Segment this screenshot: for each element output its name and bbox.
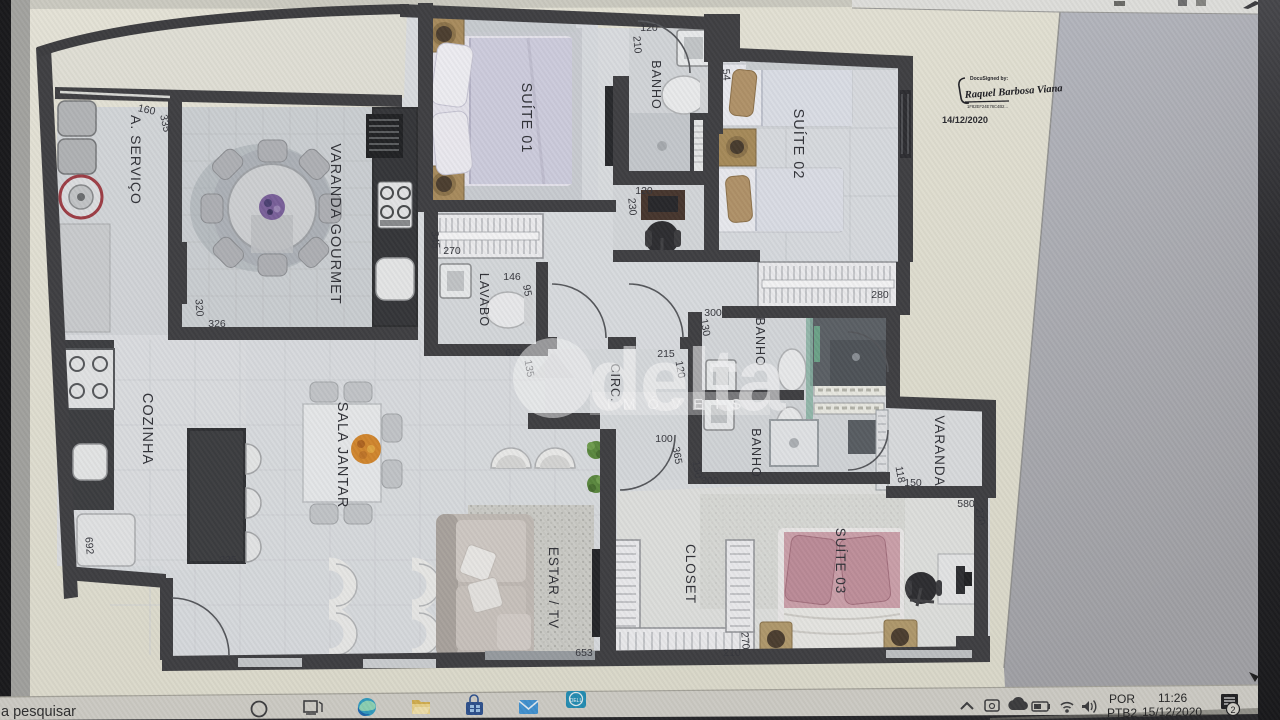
svg-text:692: 692: [82, 536, 95, 555]
svg-text:SUÍTE 02: SUÍTE 02: [790, 109, 807, 180]
svg-text:CLOSET: CLOSET: [683, 544, 698, 604]
svg-text:VARANDA: VARANDA: [932, 415, 947, 486]
svg-text:326: 326: [208, 318, 226, 330]
svg-text:PTB2: PTB2: [1107, 706, 1137, 720]
svg-text:11:26: 11:26: [1158, 691, 1187, 705]
svg-text:IMÓVEIS: IMÓVEIS: [607, 396, 754, 413]
svg-text:120: 120: [635, 185, 653, 197]
svg-text:14/12/2020: 14/12/2020: [942, 115, 988, 125]
svg-text:580: 580: [957, 498, 975, 510]
svg-text:ESTAR / TV: ESTAR / TV: [546, 547, 561, 629]
svg-text:SUÍTE 03: SUÍTE 03: [833, 528, 848, 595]
svg-text:15/12/2020: 15/12/2020: [1142, 705, 1202, 719]
svg-text:SALA JANTAR: SALA JANTAR: [334, 402, 350, 509]
svg-text:VARANDA GOURMET: VARANDA GOURMET: [327, 143, 343, 304]
svg-text:210: 210: [723, 647, 741, 659]
svg-text:54: 54: [720, 68, 733, 81]
svg-text:345: 345: [428, 231, 441, 249]
svg-text:100: 100: [655, 433, 673, 445]
svg-text:LAVABO: LAVABO: [477, 273, 491, 327]
svg-text:1F82EF24E78C4B2...: 1F82EF24E78C4B2...: [967, 104, 1008, 109]
svg-text:A. SERVIÇO: A. SERVIÇO: [128, 115, 144, 205]
svg-text:270: 270: [443, 245, 461, 257]
svg-text:BANHO: BANHO: [649, 60, 663, 109]
svg-text:120: 120: [640, 22, 658, 34]
svg-text:300: 300: [701, 475, 719, 487]
svg-text:DocuSigned by:: DocuSigned by:: [970, 76, 1008, 82]
svg-text:210: 210: [630, 35, 643, 54]
svg-text:300: 300: [704, 307, 722, 319]
svg-text:320: 320: [192, 299, 205, 317]
svg-text:2: 2: [1230, 705, 1235, 715]
svg-text:235: 235: [219, 554, 237, 566]
svg-text:150: 150: [904, 477, 922, 489]
svg-text:COZINHA: COZINHA: [139, 393, 155, 465]
svg-text:95: 95: [520, 284, 534, 298]
svg-text:POR: POR: [1109, 692, 1135, 706]
svg-text:a pesquisar: a pesquisar: [1, 704, 76, 720]
svg-text:DELL: DELL: [570, 698, 583, 704]
svg-text:653: 653: [575, 647, 593, 659]
svg-text:146: 146: [503, 271, 521, 283]
svg-text:SUÍTE 01: SUÍTE 01: [518, 83, 535, 154]
svg-text:280: 280: [871, 289, 889, 301]
svg-text:230: 230: [625, 197, 638, 216]
svg-text:BANHO: BANHO: [749, 428, 763, 477]
